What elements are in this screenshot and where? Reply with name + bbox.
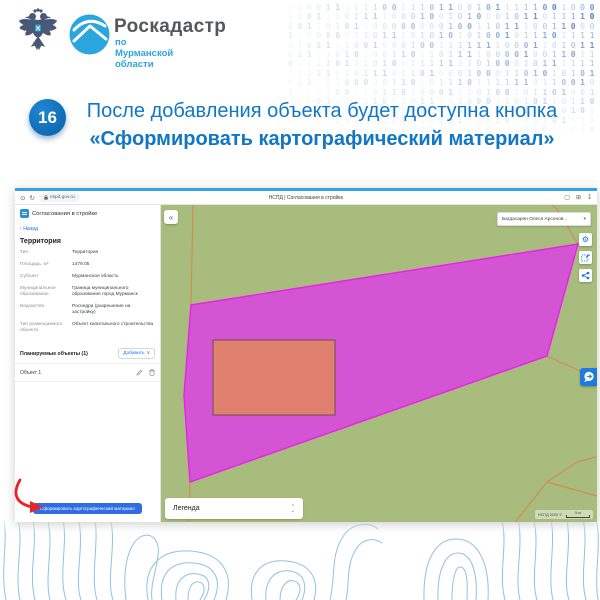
browser-toolbar: ⊙ ↻ nspd.gov.ru НСПД | Согласования в ст… — [15, 191, 597, 205]
download-icon[interactable]: ↧ — [587, 194, 592, 201]
share-button[interactable] — [579, 269, 592, 282]
step-number-badge: 16 — [29, 99, 66, 136]
field-row: Тип размещаемого объектаОбъект капитальн… — [20, 322, 155, 334]
back-link[interactable]: ‹ Назад — [15, 222, 160, 232]
chevron-down-icon: ∨ — [146, 351, 150, 356]
field-label: Тип размещаемого объекта — [20, 322, 72, 334]
legend-label: Легенда — [173, 505, 200, 512]
map-canvas[interactable] — [161, 205, 597, 522]
gear-icon: ⚙ — [582, 235, 589, 244]
field-label: Площадь, м² — [20, 262, 72, 268]
field-value: Объект капитального строительства — [72, 322, 155, 334]
chat-bubble-icon — [583, 371, 595, 383]
edit-pencil-icon[interactable] — [136, 369, 143, 376]
object-label: Объект 1 — [20, 370, 41, 376]
headline-bold: «Сформировать картографический материал» — [89, 128, 554, 150]
field-value: Роснедра (разрешение на застройку) — [72, 304, 155, 316]
field-row: ВедомствоРоснедра (разрешение на застрой… — [20, 304, 155, 316]
planned-object-rect — [213, 340, 335, 415]
user-account-dropdown[interactable]: Багдасарян Олеся Арсенов... ▾ — [497, 212, 591, 226]
field-value: Территория — [72, 250, 155, 256]
eagle-emblem-icon — [18, 8, 58, 52]
caret-down-icon: ▾ — [583, 216, 586, 222]
field-label: Тип — [20, 250, 72, 256]
map-settings-button[interactable]: ⚙ — [579, 233, 592, 246]
roskadastr-logo-icon — [69, 14, 110, 55]
generate-cartographic-material-button[interactable]: Сформировать картографический материал — [33, 503, 142, 514]
extensions-icon[interactable]: ⊞ — [576, 194, 581, 201]
step-number: 16 — [38, 108, 57, 128]
org-name: Роскадастр — [114, 16, 226, 38]
panel-header: Согласования в стройке — [15, 205, 160, 222]
panel-title: Согласования в стройке — [32, 211, 97, 217]
app-screenshot: ⊙ ↻ nspd.gov.ru НСПД | Согласования в ст… — [15, 188, 597, 522]
map-attribution: НСПД 2025 © 5 м — [535, 510, 593, 519]
map-tools: ⚙ — [579, 233, 592, 282]
planned-objects-title: Планируемые объекты (1) — [20, 351, 88, 357]
headline: После добавления объекта будет доступна … — [76, 97, 568, 153]
field-row: Площадь, м²1479.05 — [20, 262, 155, 268]
org-region: по Мурманской области — [115, 37, 173, 70]
field-row: ТипТерритория — [20, 250, 155, 256]
field-row: СубъектМурманская область — [20, 274, 155, 280]
field-value: Мурманская область — [72, 274, 155, 280]
side-panel: Согласования в стройке ‹ Назад Территори… — [15, 205, 161, 522]
field-value: Граница муниципального образования город… — [72, 286, 155, 298]
field-label: Субъект — [20, 274, 72, 280]
delete-trash-icon[interactable] — [149, 369, 155, 376]
field-label: Муниципальное образование — [20, 286, 72, 298]
app-icon — [20, 209, 29, 218]
feedback-chat-button[interactable] — [580, 368, 597, 386]
contour-pattern — [0, 515, 600, 600]
field-label: Ведомство — [20, 304, 72, 316]
attribution-text: НСПД 2025 © — [538, 513, 562, 517]
legend-dropdown[interactable]: Легенда ⌃ ⌄ — [165, 498, 303, 519]
draw-area-icon — [581, 253, 590, 262]
headline-regular: После добавления объекта будет доступна … — [87, 100, 557, 122]
field-value: 1479.05 — [72, 262, 155, 268]
map-area[interactable]: « Багдасарян Олеся Арсенов... ▾ ⚙ — [161, 205, 597, 522]
territory-fields: ТипТерриторияПлощадь, м²1479.05СубъектМу… — [15, 247, 160, 340]
add-object-button[interactable]: Добавить ∨ — [118, 348, 155, 359]
section-title: Территория — [15, 232, 160, 247]
collapse-icon: « — [169, 213, 173, 222]
poster: Роскадастр по Мурманской области 1000111… — [0, 0, 600, 600]
panel-collapse-button[interactable]: « — [164, 210, 178, 224]
tab-title: НСПД | Согласования в стройке — [15, 195, 597, 201]
object-list-item[interactable]: Объект 1 — [15, 363, 160, 382]
sort-down-icon: ⌄ — [291, 509, 295, 513]
bookmark-icon[interactable]: ▢ — [564, 194, 570, 201]
share-icon — [581, 271, 590, 280]
field-row: Муниципальное образованиеГраница муницип… — [20, 286, 155, 298]
arrow-annotation — [9, 477, 47, 517]
user-name: Багдасарян Олеся Арсенов... — [502, 217, 567, 222]
draw-area-button[interactable] — [579, 251, 592, 264]
scale-bar: 5 м — [566, 511, 590, 518]
